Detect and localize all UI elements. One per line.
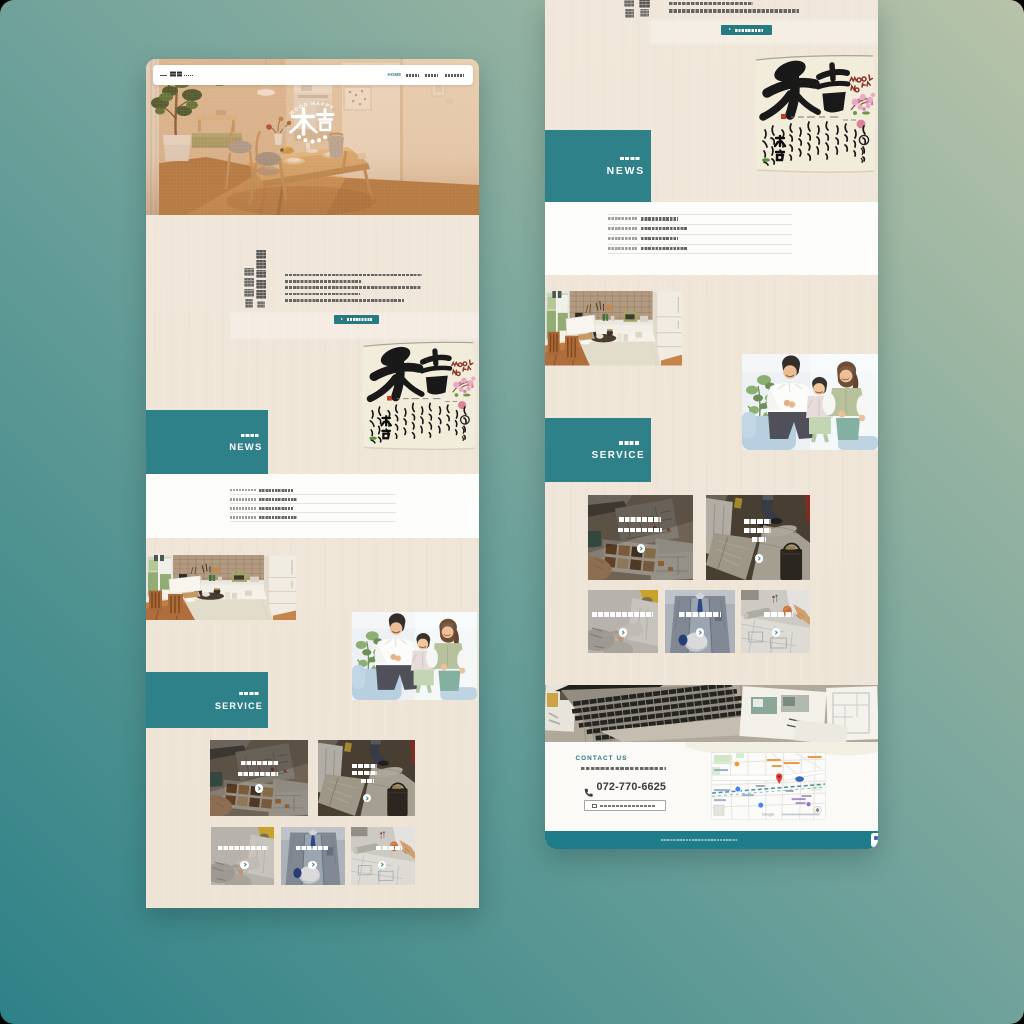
svg-text:Google: Google <box>761 811 775 816</box>
